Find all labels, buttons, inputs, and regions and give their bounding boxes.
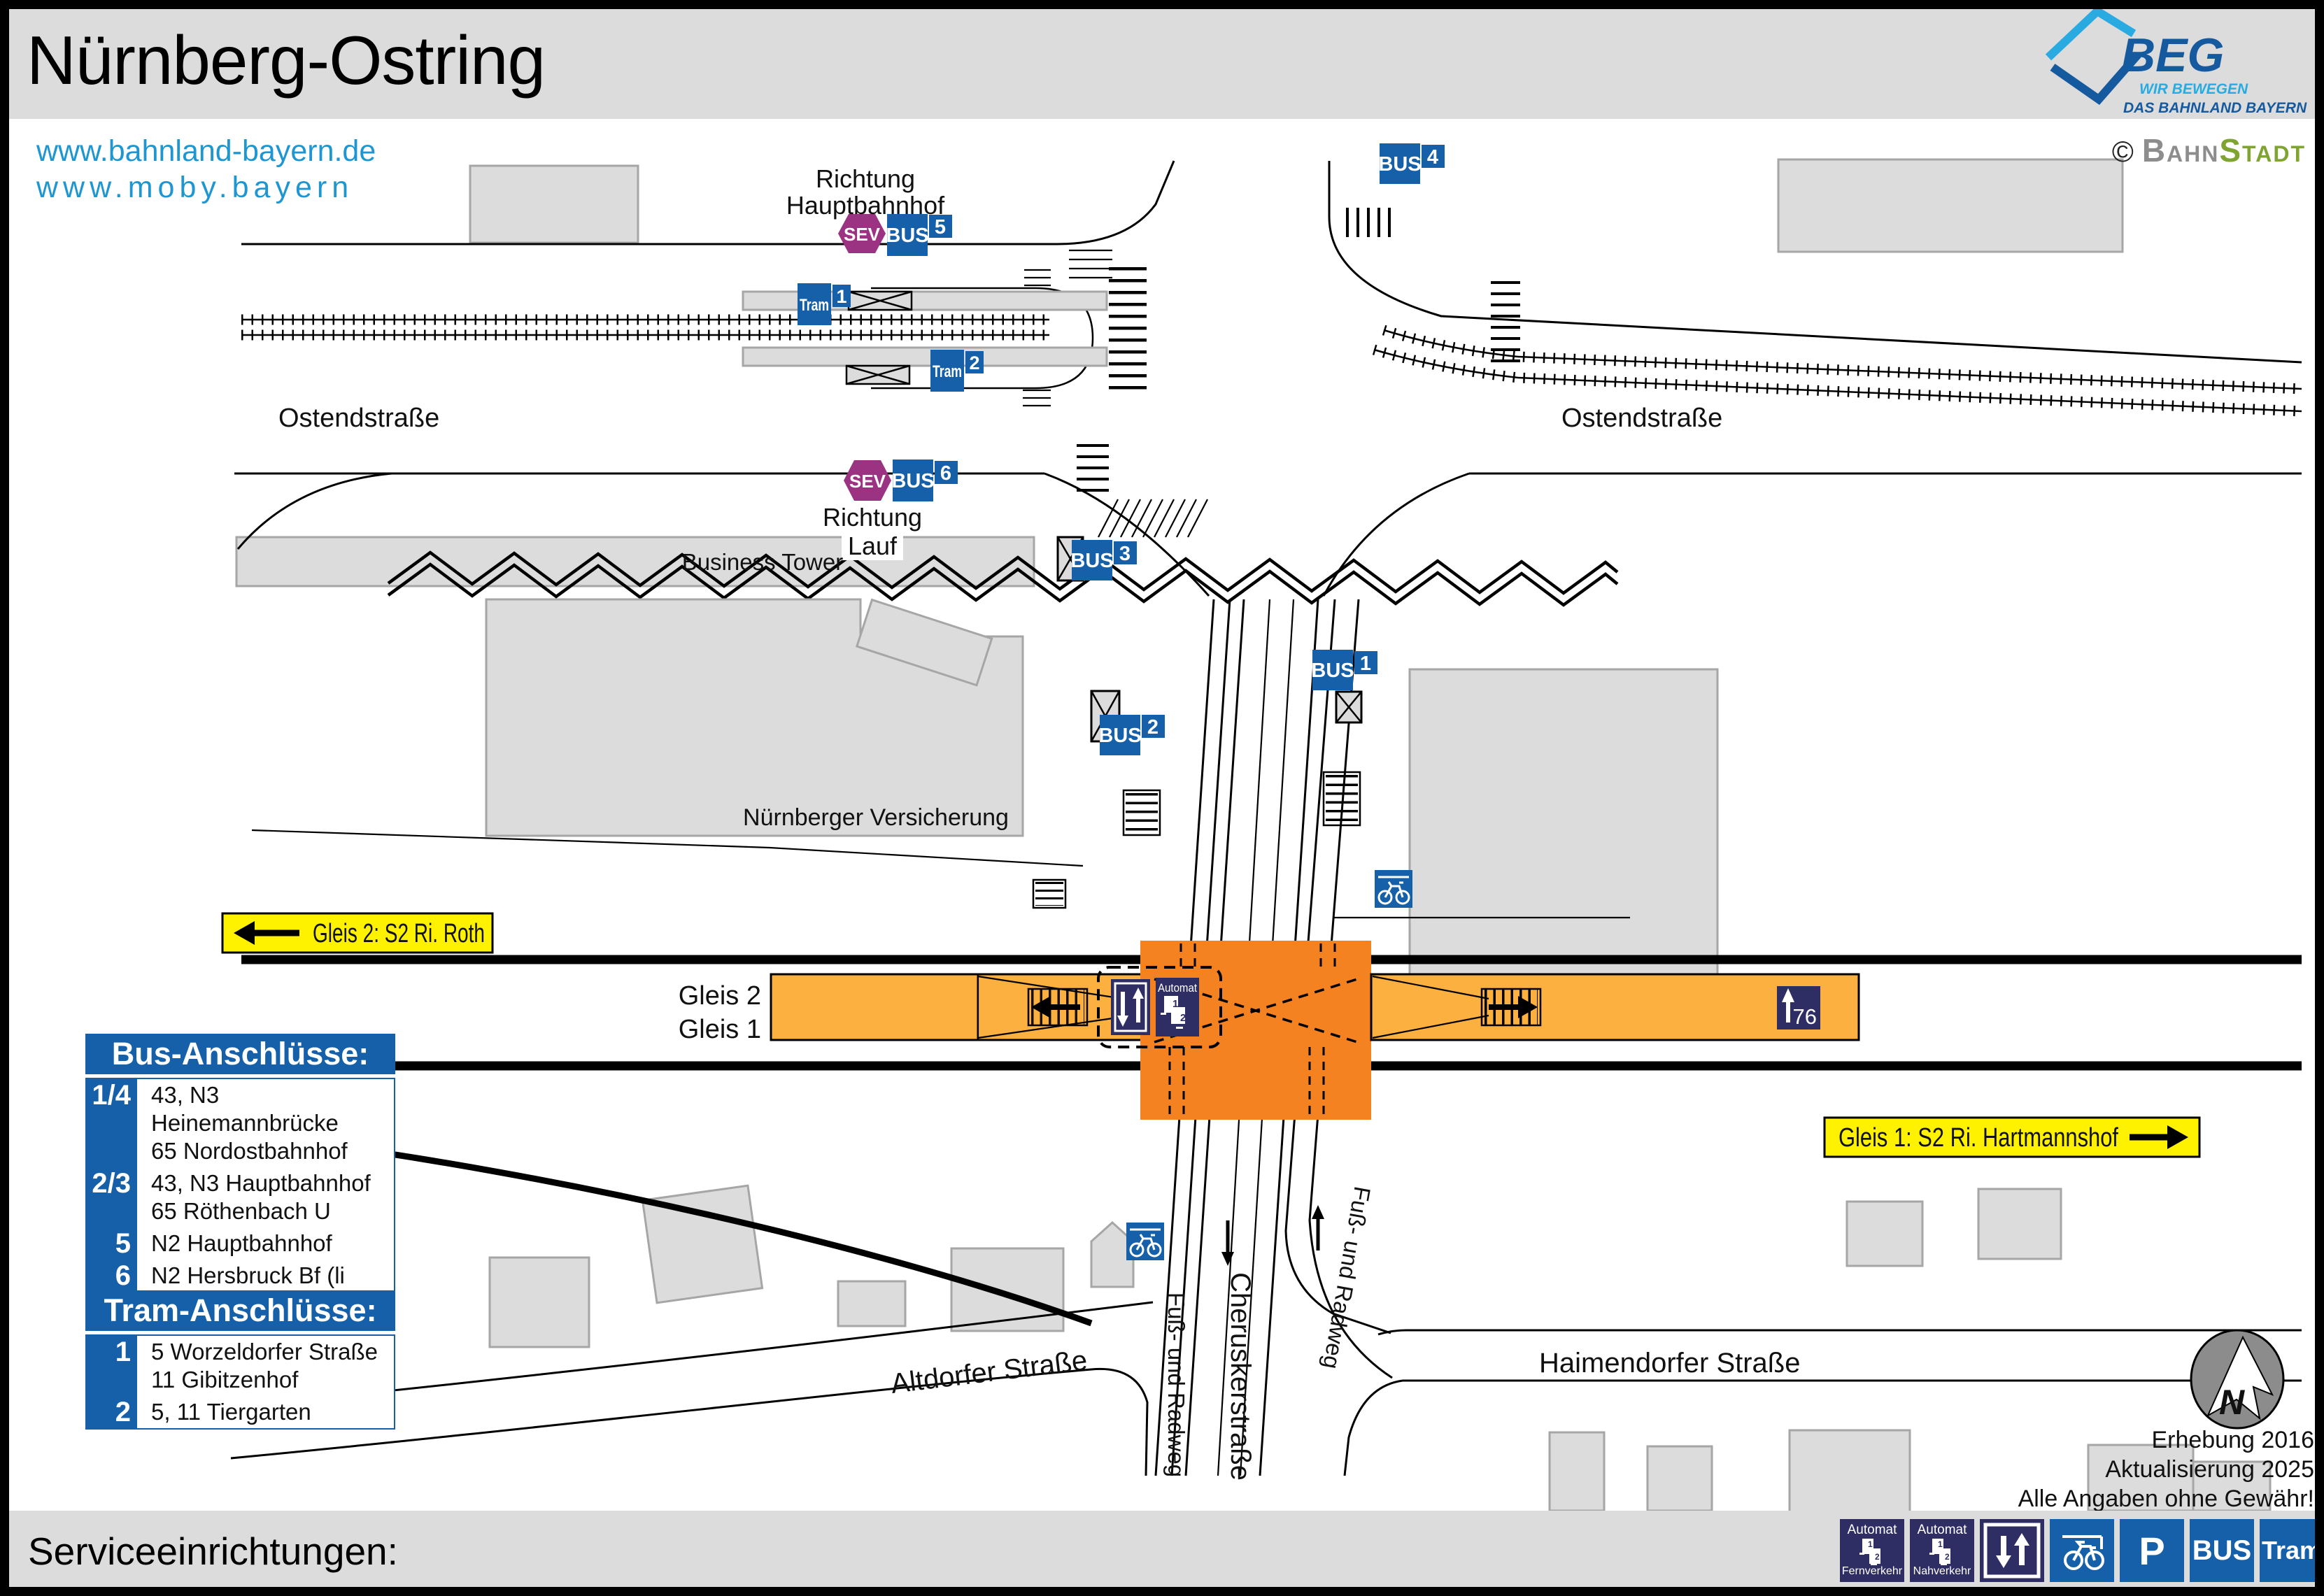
service-facilities-title: Serviceeinrichtungen: [28, 1529, 398, 1574]
svg-text:Aktualisierung 2025: Aktualisierung 2025 [2105, 1456, 2314, 1483]
svg-text:Tram: Tram [933, 362, 962, 381]
stop-bus-2: BUS 2 [1098, 715, 1165, 755]
tram-connections-title: Tram-Anschlüsse: [85, 1290, 395, 1331]
svg-text:Erhebung 2016: Erhebung 2016 [2151, 1427, 2314, 1453]
svg-text:2: 2 [1875, 1552, 1880, 1562]
link-bahnland: www.bahnland-bayern.de [36, 133, 376, 169]
buildings-north [236, 159, 2123, 586]
bus-connection-row: 5 N2 Hauptbahnhof [87, 1227, 394, 1260]
svg-text:2: 2 [969, 352, 979, 373]
ticket-machine-icon: Automat 1 2 [1156, 978, 1199, 1036]
svg-text:Gleis 2: S2 Ri. Roth: Gleis 2: S2 Ri. Roth [313, 919, 485, 948]
svg-text:Automat: Automat [1158, 981, 1197, 995]
svg-text:Richtung: Richtung [816, 164, 915, 193]
svg-text:SEV: SEV [849, 471, 886, 492]
svg-text:BUS: BUS [1311, 660, 1354, 682]
tram-tracks [241, 288, 2302, 411]
bahnstadt-credit: ©BahnStadt [2112, 131, 2306, 169]
station-map-poster: Automat 1 2 76 Gleis 2 Gleis 1 [0, 0, 2324, 1596]
service-icons: Automat 1 2 Fernverkehr Automat 1 2 Nahv… [1840, 1519, 2324, 1582]
svg-text:BUS: BUS [1378, 153, 1421, 176]
automat-fernverkehr-icon: Automat 1 2 Fernverkehr [1840, 1519, 1904, 1582]
svg-text:Fuß- und Radweg: Fuß- und Radweg [1318, 1185, 1375, 1371]
gleis1-label: Gleis 1 [679, 1015, 761, 1044]
svg-text:Tram: Tram [800, 296, 829, 315]
bus-connections-title: Bus-Anschlüsse: [85, 1034, 395, 1074]
svg-text:1: 1 [1360, 653, 1371, 675]
access-stairs [1033, 772, 1360, 908]
svg-text:Richtung: Richtung [823, 503, 922, 532]
automat-nahverkehr-icon: Automat 1 2 Nahverkehr [1910, 1519, 1974, 1582]
bike-parking-icon-south [1126, 1223, 1164, 1260]
crosswalks-north [1023, 222, 1505, 537]
bus-connections-box: Bus-Anschlüsse: 1/4 43, N3 Heinemannbrüc… [85, 1034, 395, 1321]
website-links: www.bahnland-bayern.de www.moby.bayern [36, 133, 376, 206]
svg-text:Business Tower: Business Tower [682, 549, 844, 575]
tram-icon: Tram [2260, 1519, 2324, 1582]
bus-icon: BUS [2190, 1519, 2254, 1582]
stop-bus-3: BUS 3 [1070, 540, 1137, 580]
buildings-south [486, 599, 2270, 1513]
svg-text:BUS: BUS [1070, 550, 1113, 572]
tram-connection-row: 2 5, 11 Tiergarten [87, 1396, 394, 1428]
parking-count-sign: 76 [1777, 986, 1820, 1029]
svg-text:6: 6 [940, 462, 951, 485]
svg-text:Haimendorfer Straße: Haimendorfer Straße [1539, 1348, 1800, 1378]
svg-text:BUS: BUS [886, 225, 928, 247]
ticket-machine-glyph: 1 2 [1929, 1537, 1955, 1565]
svg-text:4: 4 [1427, 146, 1438, 169]
stop-sev-bus-5: SEV BUS 5 [838, 214, 952, 256]
stop-sev-bus-6: SEV BUS 6 [844, 459, 958, 501]
svg-text:Nürnberger Versicherung: Nürnberger Versicherung [743, 804, 1009, 831]
compass-north-icon: N [2191, 1330, 2283, 1428]
bus-connection-row: 1/4 43, N3 Heinemannbrücke65 Nordostbahn… [87, 1079, 394, 1167]
svg-text:Hauptbahnhof: Hauptbahnhof [786, 191, 945, 220]
ticket-machine-glyph: 1 2 [1859, 1537, 1885, 1565]
svg-text:WIR BEWEGEN: WIR BEWEGEN [2139, 81, 2248, 97]
stop-bus-1: BUS 1 [1311, 650, 1377, 690]
svg-text:DAS BAHNLAND BAYERN: DAS BAHNLAND BAYERN [2123, 100, 2307, 116]
bus-connection-row: 2/3 43, N3 Hauptbahnhof65 Röthenbach U [87, 1167, 394, 1227]
tram-shelter-1 [849, 292, 912, 310]
svg-text:Alle Angaben ohne Gewähr!: Alle Angaben ohne Gewähr! [2018, 1485, 2314, 1512]
gleis2-direction-sign: Gleis 2: S2 Ri. Roth [222, 913, 493, 953]
svg-text:Fuß- und Radweg: Fuß- und Radweg [1163, 1292, 1189, 1477]
link-moby: www.moby.bayern [36, 169, 376, 206]
svg-text:SEV: SEV [844, 224, 881, 245]
traffic-direction-arrows [1221, 1205, 1324, 1266]
tram-connections-box: Tram-Anschlüsse: 1 5 Worzeldorfer Straße… [85, 1290, 395, 1430]
survey-notes: Erhebung 2016 Aktualisierung 2025 Alle A… [2018, 1427, 2314, 1512]
beg-logo: BEG WIR BEWEGEN DAS BAHNLAND BAYERN [0, 0, 2324, 119]
svg-text:Cheruskerstraße: Cheruskerstraße [1225, 1272, 1256, 1481]
parking-icon: P [2120, 1519, 2184, 1582]
tram-connection-row: 1 5 Worzeldorfer Straße11 Gibitzenhof [87, 1336, 394, 1396]
svg-text:1: 1 [836, 286, 846, 307]
svg-text:1: 1 [1868, 1539, 1873, 1549]
lift-icon [1980, 1519, 2044, 1582]
stop-bus-4: BUS 4 [1378, 143, 1445, 184]
svg-text:1: 1 [1938, 1539, 1943, 1549]
stop-tram-2: Tram 2 [930, 350, 984, 392]
svg-text:N: N [2219, 1383, 2245, 1422]
svg-text:Ostendstraße: Ostendstraße [1561, 404, 1722, 433]
svg-text:2: 2 [1180, 1012, 1186, 1024]
svg-text:BUS: BUS [1098, 725, 1141, 747]
business-tower-building [236, 537, 1034, 586]
beg-logo-text: BEG [2121, 29, 2224, 82]
copyright-icon: © [2112, 135, 2135, 168]
svg-text:2: 2 [1147, 716, 1159, 739]
bike-parking-icon-north [1375, 870, 1412, 908]
bike-parking-icon [2050, 1519, 2114, 1582]
svg-text:Lauf: Lauf [848, 532, 898, 560]
svg-text:2: 2 [1945, 1552, 1950, 1562]
lift-icon [1111, 979, 1150, 1035]
svg-text:Ostendstraße: Ostendstraße [278, 404, 439, 433]
svg-text:Gleis 1: S2 Ri. Hartmannshof: Gleis 1: S2 Ri. Hartmannshof [1838, 1123, 2118, 1153]
svg-text:76: 76 [1793, 1004, 1817, 1029]
svg-text:3: 3 [1119, 543, 1131, 565]
gleis2-label: Gleis 2 [679, 981, 761, 1011]
svg-text:Altdorfer Straße: Altdorfer Straße [889, 1345, 1089, 1399]
tram-shelter-2 [846, 366, 909, 384]
header-bar: Nürnberg-Ostring BEG WIR BEWEGEN DAS BAH… [0, 0, 2324, 119]
svg-text:1: 1 [1172, 998, 1178, 1010]
gleis1-direction-sign: Gleis 1: S2 Ri. Hartmannshof [1825, 1118, 2199, 1157]
svg-text:BUS: BUS [891, 470, 934, 492]
